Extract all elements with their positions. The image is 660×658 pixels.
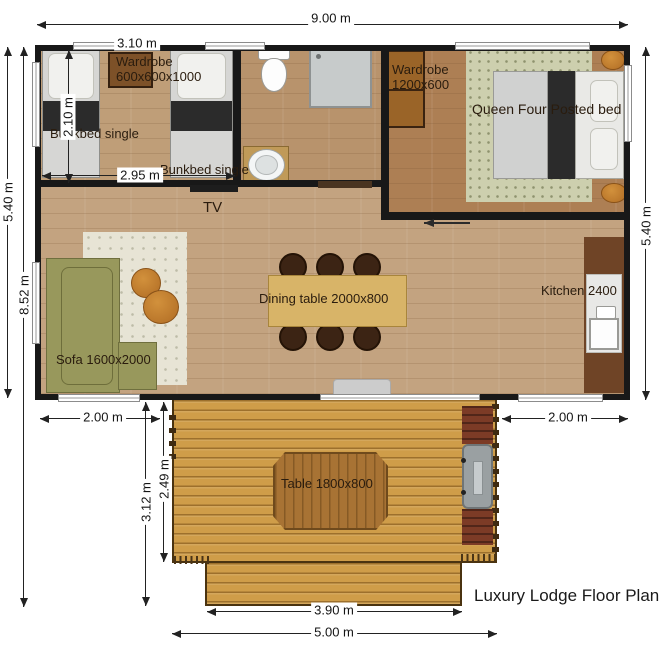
master-wardrobe-label: Wardrobe 1200x600 — [392, 62, 449, 92]
deck-table-label: Table 1800x800 — [281, 476, 373, 491]
wall-master-bottom — [381, 212, 630, 220]
dim-line-total-depth — [23, 47, 24, 607]
master-door-swing-arrow — [424, 222, 470, 224]
dim-label-deck-total-depth: 3.12 m — [139, 479, 154, 525]
deck-railing-left — [169, 415, 176, 460]
window-left-bedroom — [32, 62, 40, 147]
tv-unit — [190, 185, 238, 192]
grill-knob-icon — [461, 490, 466, 495]
plan-title: Luxury Lodge Floor Plan — [474, 586, 659, 606]
grill-lid-slot — [473, 461, 483, 495]
tv-label: TV — [203, 200, 222, 215]
window-right-master — [624, 65, 632, 142]
master-wardrobe-label-line2: 1200x600 — [392, 77, 449, 92]
dim-label-deck-offset-left: 2.00 m — [80, 410, 126, 425]
bbq-grill — [462, 444, 493, 509]
window-left-living — [32, 262, 40, 344]
small-wardrobe-label-line1: Wardrobe — [116, 54, 201, 69]
deck-railing-right — [492, 404, 499, 560]
deck-planter-bottom — [462, 509, 493, 545]
floor-plan-canvas: Wardrobe 600x600x1000 Bunkbed single Bun… — [0, 0, 660, 658]
dim-label-deck-upper-width: 5.00 m — [311, 625, 357, 640]
window-top-bathroom — [205, 42, 265, 50]
sofa-label: Sofa 1600x2000 — [56, 352, 151, 367]
window-bottom-living — [58, 394, 140, 402]
dim-label-total-depth: 8.52 m — [17, 272, 32, 318]
small-wardrobe-label: Wardrobe 600x600x1000 — [116, 54, 201, 84]
window-top-master — [455, 42, 590, 50]
dim-label-building-depth-left: 5.40 m — [1, 179, 16, 225]
dim-label-deck-lower-width: 3.90 m — [311, 603, 357, 618]
deck-lower — [205, 563, 462, 606]
kitchen-label: Kitchen 2400 — [541, 283, 617, 298]
dining-table-label: Dining table 2000x800 — [259, 291, 388, 306]
deck-edge-hatch-right — [461, 554, 495, 562]
deck-table — [273, 452, 388, 530]
window-bottom-kitchen — [518, 394, 603, 402]
bathroom-door-header — [318, 181, 372, 188]
exterior-wall — [35, 45, 630, 400]
dim-label-bedroom-inner-width: 2.95 m — [117, 168, 163, 183]
dim-label-deck-offset-right: 2.00 m — [545, 410, 591, 425]
deck-planter-top — [462, 406, 493, 444]
dim-label-building-depth-right: 5.40 m — [639, 203, 654, 249]
dim-label-bedroom-depth: 2.10 m — [61, 94, 76, 140]
dim-label-bedroom-width: 3.10 m — [114, 36, 160, 51]
dim-label-building-width: 9.00 m — [308, 11, 354, 26]
queen-bed-label: Queen Four Posted bed — [472, 102, 621, 117]
deck-edge-hatch-left — [174, 556, 210, 564]
dim-label-deck-upper-depth: 2.49 m — [157, 456, 172, 502]
master-wardrobe-label-line1: Wardrobe — [392, 62, 449, 77]
grill-knob-icon — [461, 458, 466, 463]
small-wardrobe-label-line2: 600x600x1000 — [116, 69, 201, 84]
wall-master-left — [381, 45, 389, 220]
